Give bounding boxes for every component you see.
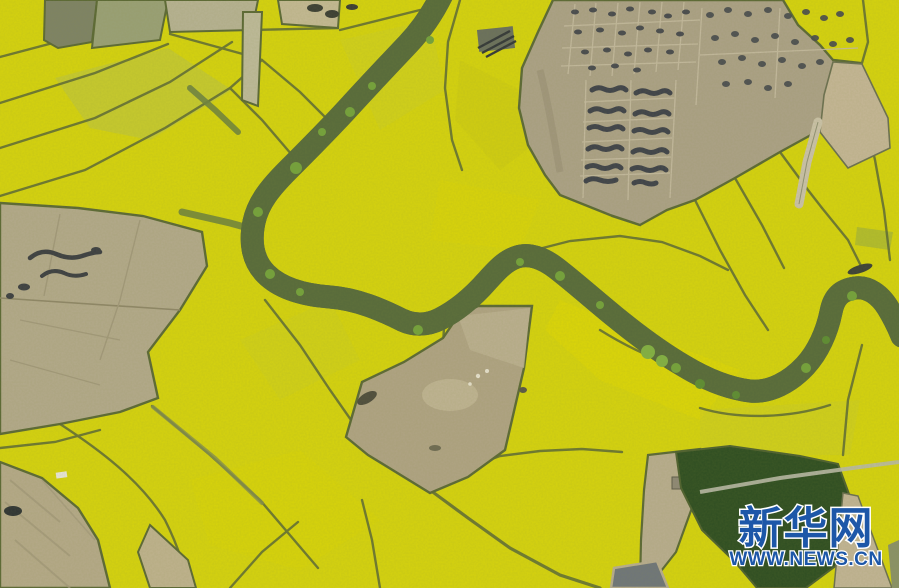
xinhuanet-logo-text: 新华网 (739, 504, 874, 553)
xinhuanet-watermark: 新华网 WWW.NEWS.CN (729, 504, 882, 570)
xinhuanet-url-text: WWW.NEWS.CN (729, 549, 882, 570)
aerial-photo-canvas: 新华网 WWW.NEWS.CN (0, 0, 899, 588)
aerial-photo: 新华网 WWW.NEWS.CN (0, 0, 899, 588)
photo-grain-texture (0, 0, 899, 588)
